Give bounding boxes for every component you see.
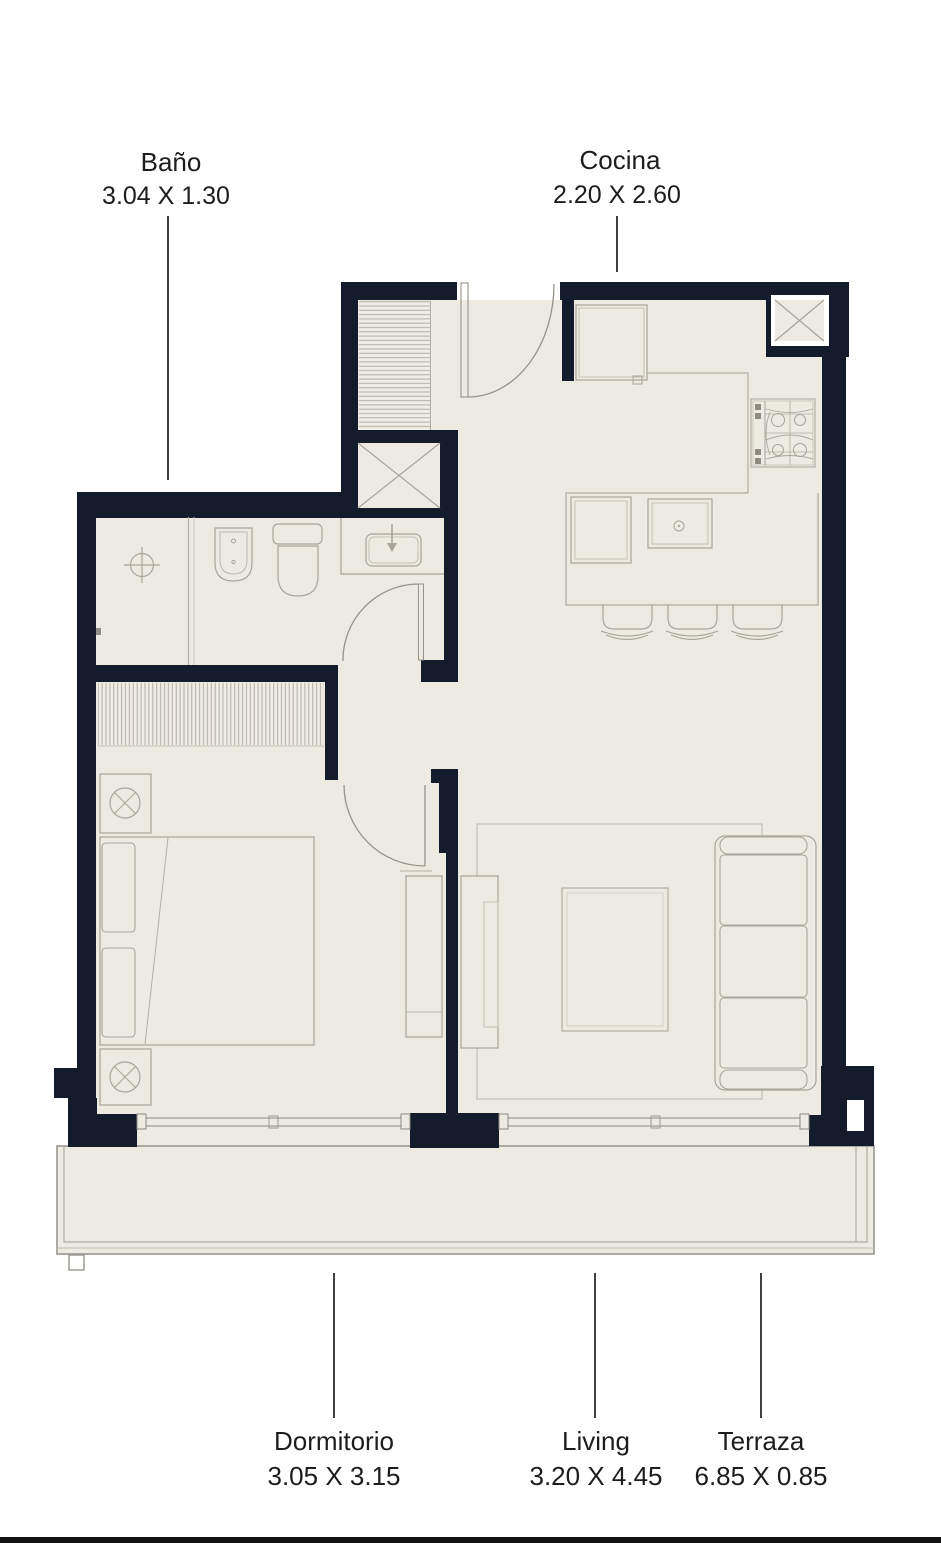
svg-text:Cocina: Cocina: [580, 145, 661, 175]
svg-text:2.20 X 2.60: 2.20 X 2.60: [553, 181, 681, 209]
svg-text:3.20 X 4.45: 3.20 X 4.45: [530, 1461, 663, 1491]
svg-text:Living: Living: [562, 1426, 630, 1456]
svg-text:3.04 X 1.30: 3.04 X 1.30: [102, 182, 230, 210]
svg-text:Terraza: Terraza: [718, 1426, 805, 1456]
svg-text:6.85 X 0.85: 6.85 X 0.85: [695, 1461, 828, 1491]
svg-text:Baño: Baño: [141, 147, 202, 177]
svg-text:Dormitorio: Dormitorio: [274, 1426, 394, 1456]
svg-text:3.05 X 3.15: 3.05 X 3.15: [268, 1461, 401, 1491]
